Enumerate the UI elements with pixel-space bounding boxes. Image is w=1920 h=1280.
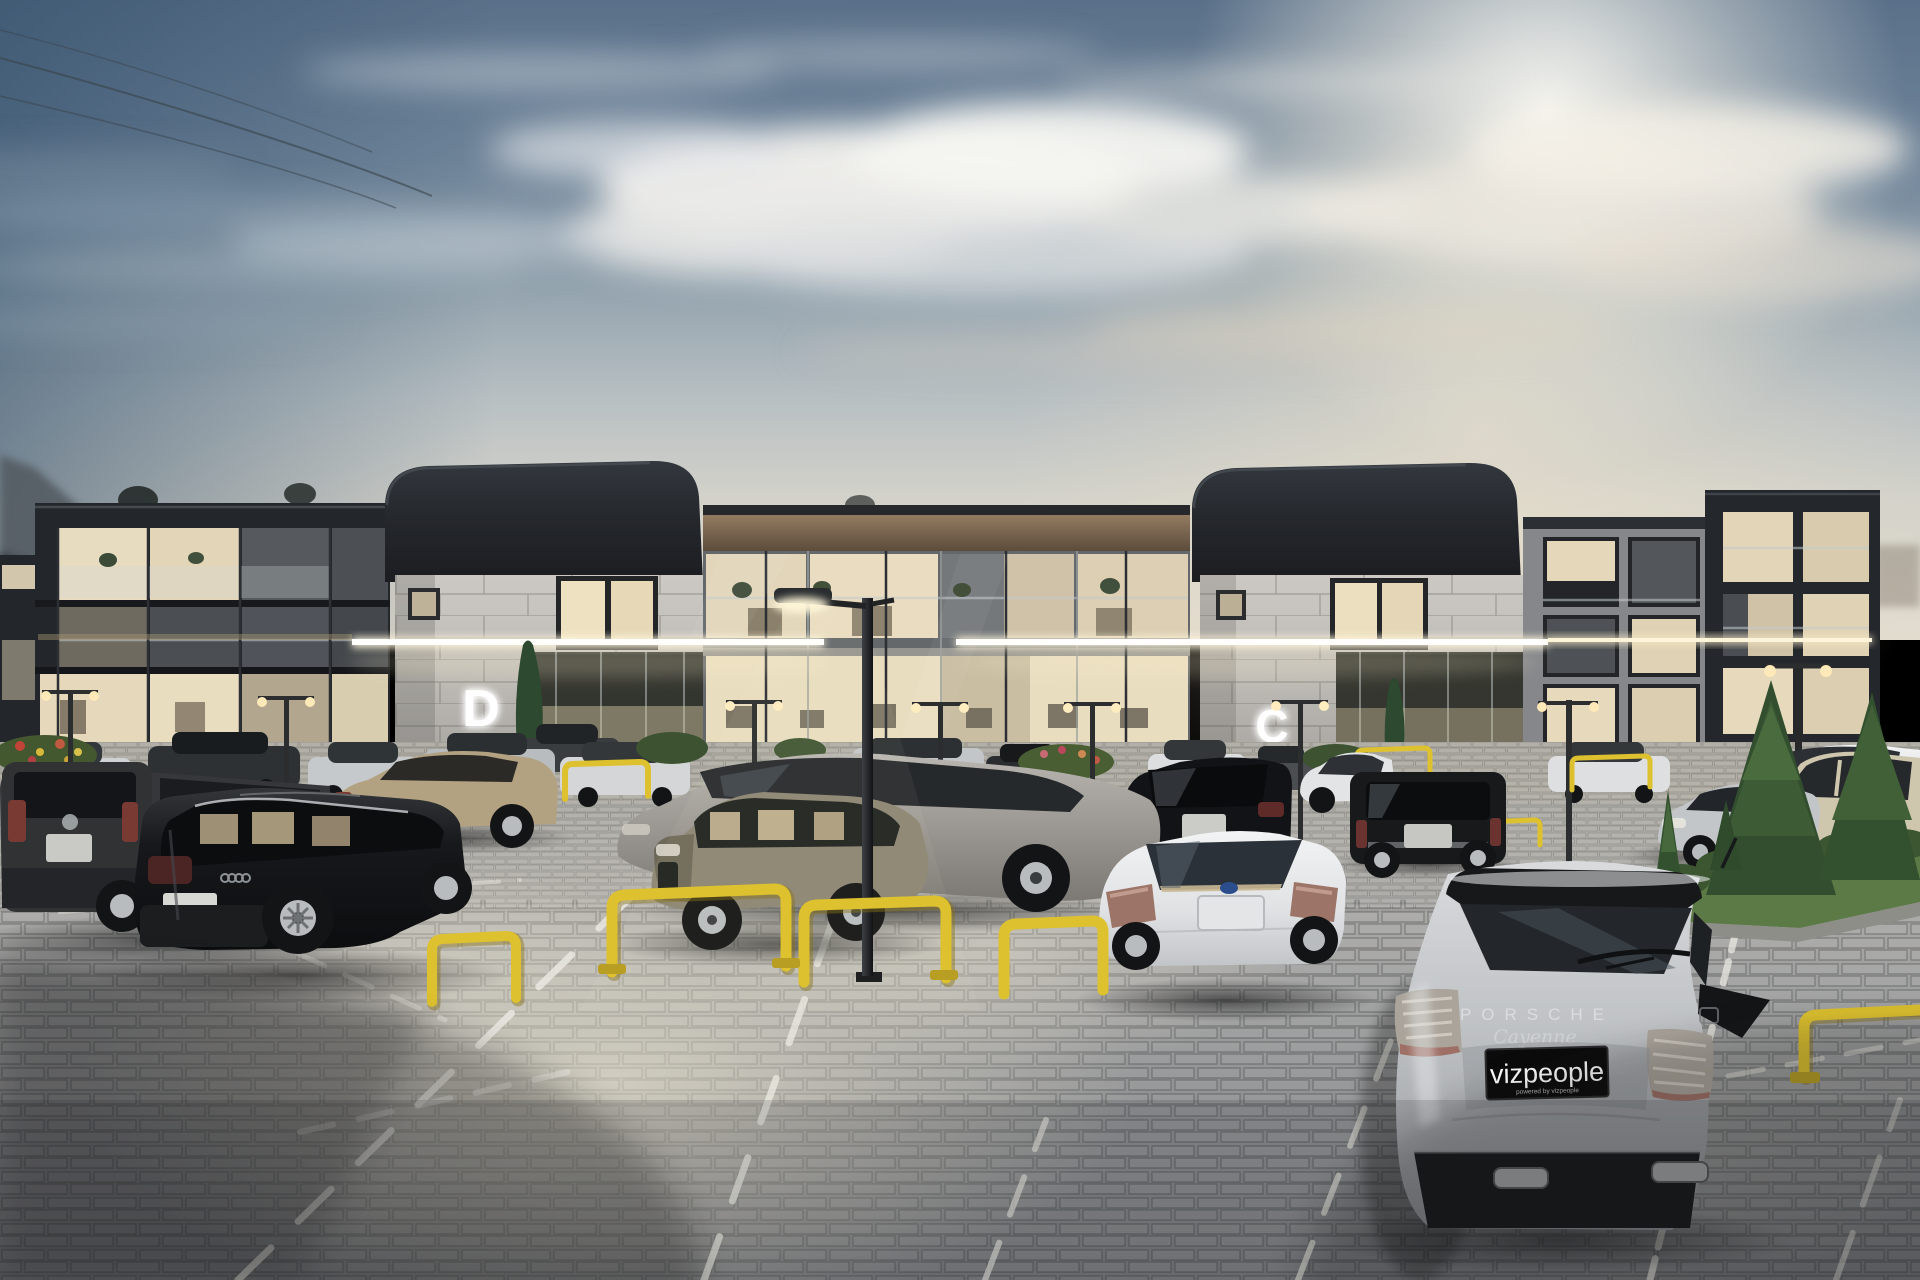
porsche-badge-text: PORSCHE [1460,1005,1614,1024]
shrub [636,732,708,764]
lamp-head-glow [773,597,829,613]
building-left-wing [0,555,40,755]
building-block-right [1705,490,1880,760]
scene-canvas: D B L O [0,0,1920,1280]
building-block-left [35,503,390,756]
tower-d-roof [385,461,703,582]
tower-c-roof [1192,463,1521,582]
sign-block-d-letter: D [462,680,500,738]
car-black-suv-distant [1333,772,1523,878]
